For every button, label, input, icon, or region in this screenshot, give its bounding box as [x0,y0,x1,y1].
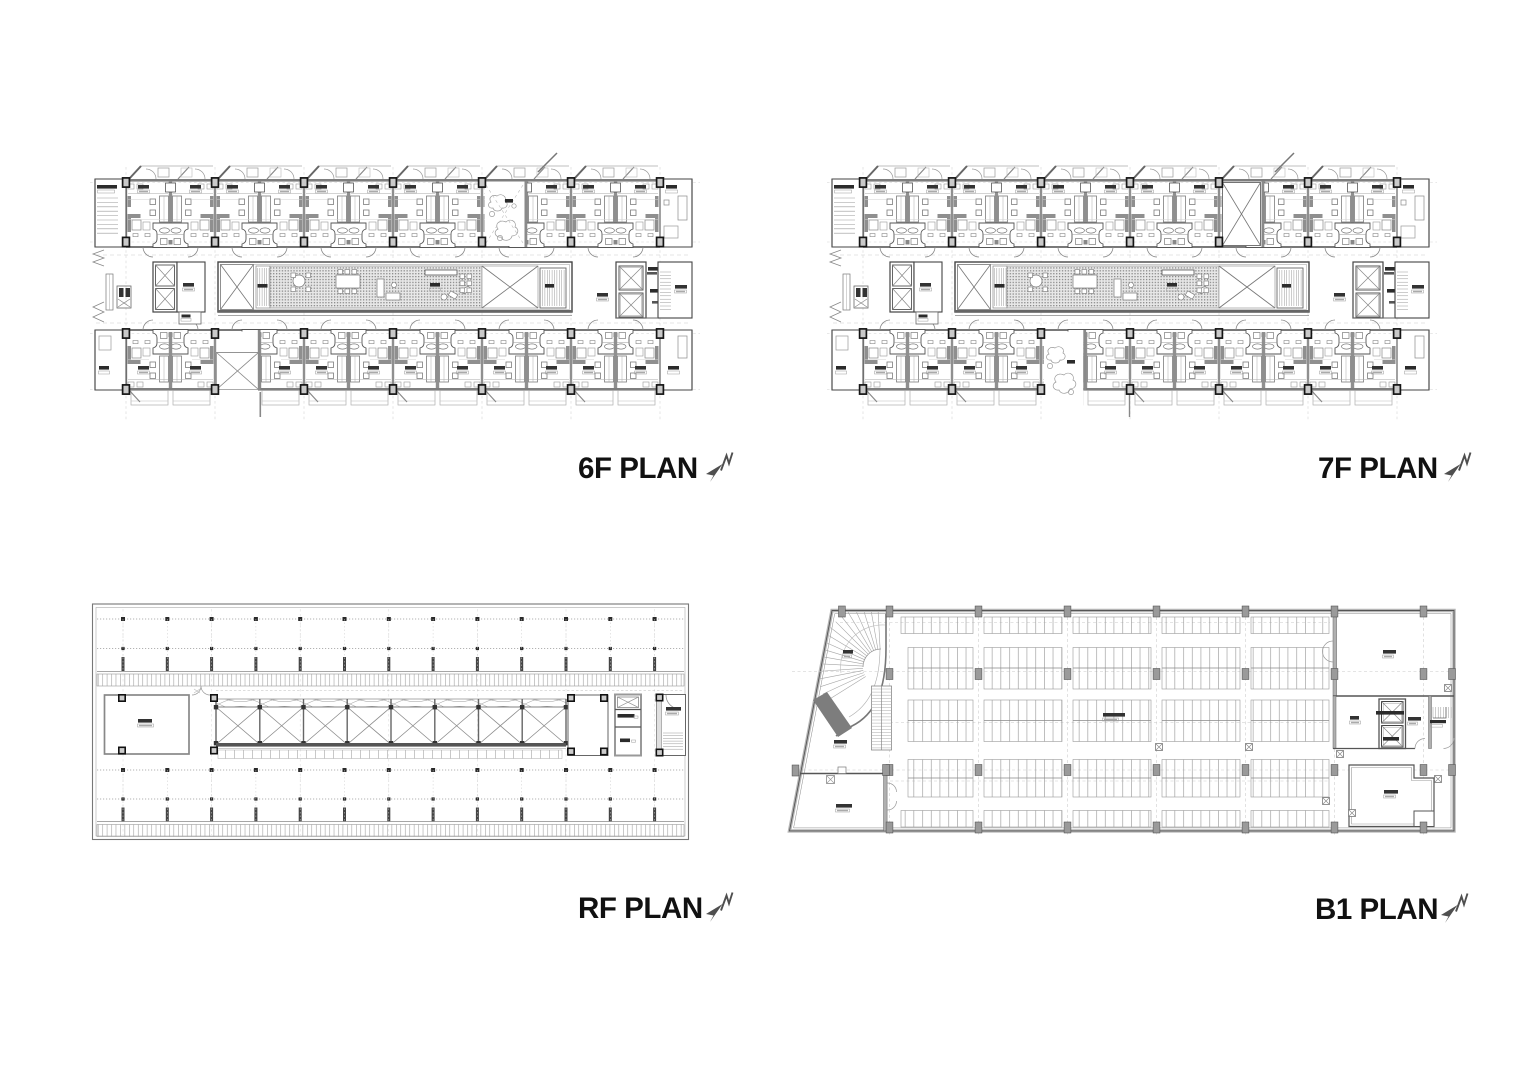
svg-text:RF PLAN: RF PLAN [578,892,703,925]
svg-text:7F PLAN: 7F PLAN [1318,452,1438,485]
svg-text:B1 PLAN: B1 PLAN [1315,893,1438,926]
svg-text:6F PLAN: 6F PLAN [578,452,698,485]
